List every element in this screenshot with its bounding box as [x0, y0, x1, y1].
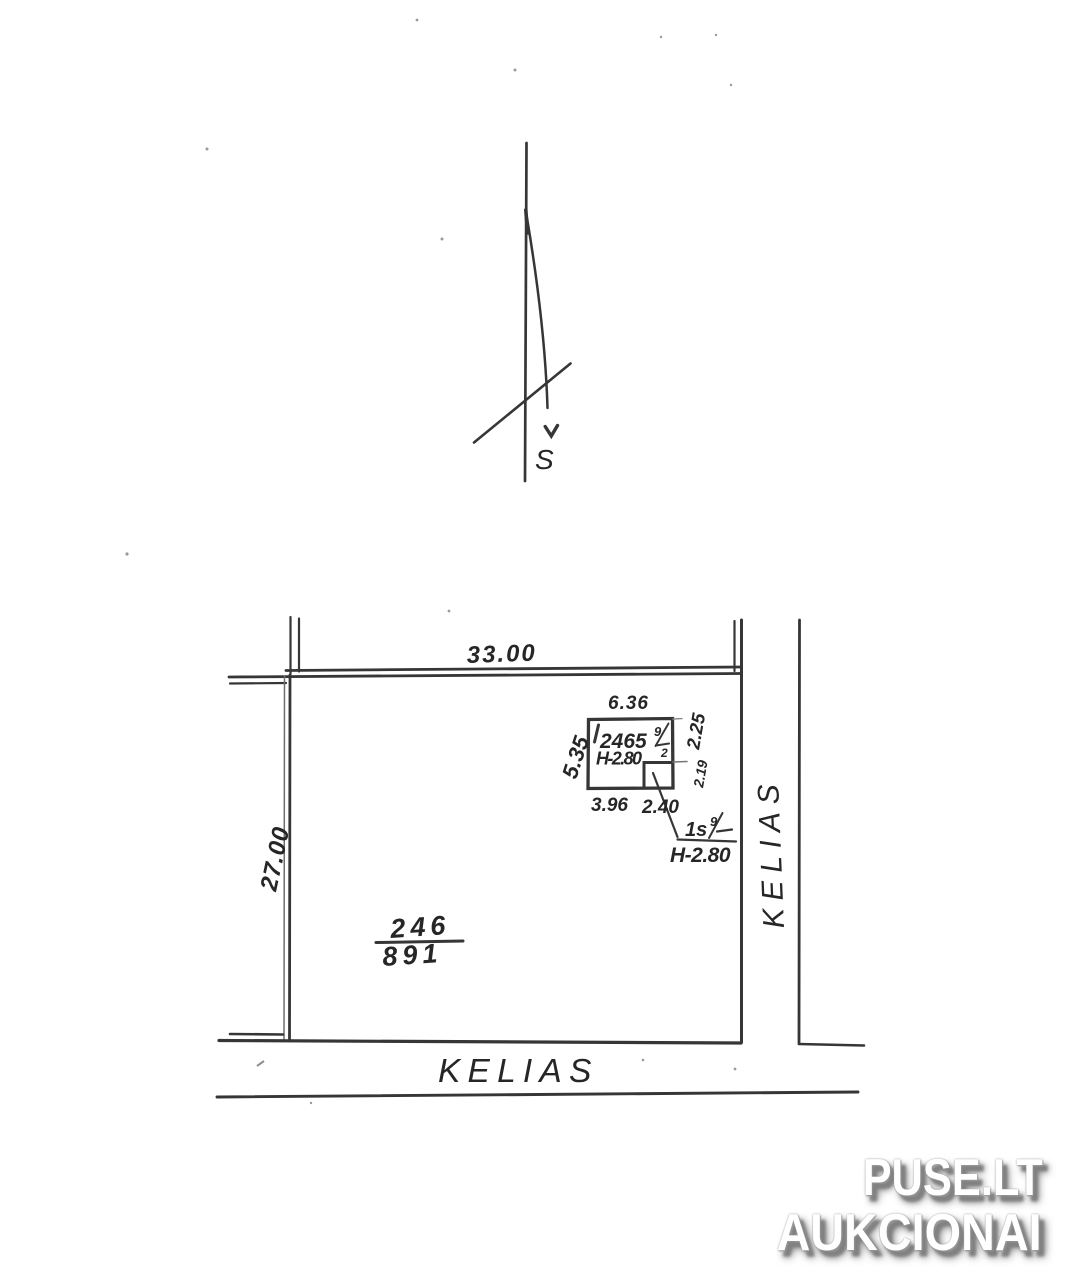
- svg-text:H-2.80: H-2.80: [670, 844, 731, 867]
- svg-text:KELIAS: KELIAS: [438, 1053, 599, 1090]
- svg-text:9: 9: [654, 724, 662, 739]
- svg-text:6.36: 6.36: [608, 693, 649, 714]
- svg-text:2.40: 2.40: [641, 797, 679, 818]
- svg-text:2.19: 2.19: [690, 759, 711, 790]
- svg-text:33.00: 33.00: [466, 640, 537, 669]
- svg-text:1s: 1s: [685, 819, 707, 841]
- svg-text:9: 9: [710, 814, 718, 829]
- svg-text:891: 891: [381, 938, 443, 972]
- svg-text:3.96: 3.96: [591, 795, 628, 816]
- svg-text:KELIAS: KELIAS: [752, 776, 791, 929]
- svg-text:H-2.80: H-2.80: [596, 749, 642, 769]
- svg-text:S: S: [535, 444, 554, 475]
- svg-text:2: 2: [660, 746, 668, 760]
- svg-text:2.25: 2.25: [682, 711, 709, 752]
